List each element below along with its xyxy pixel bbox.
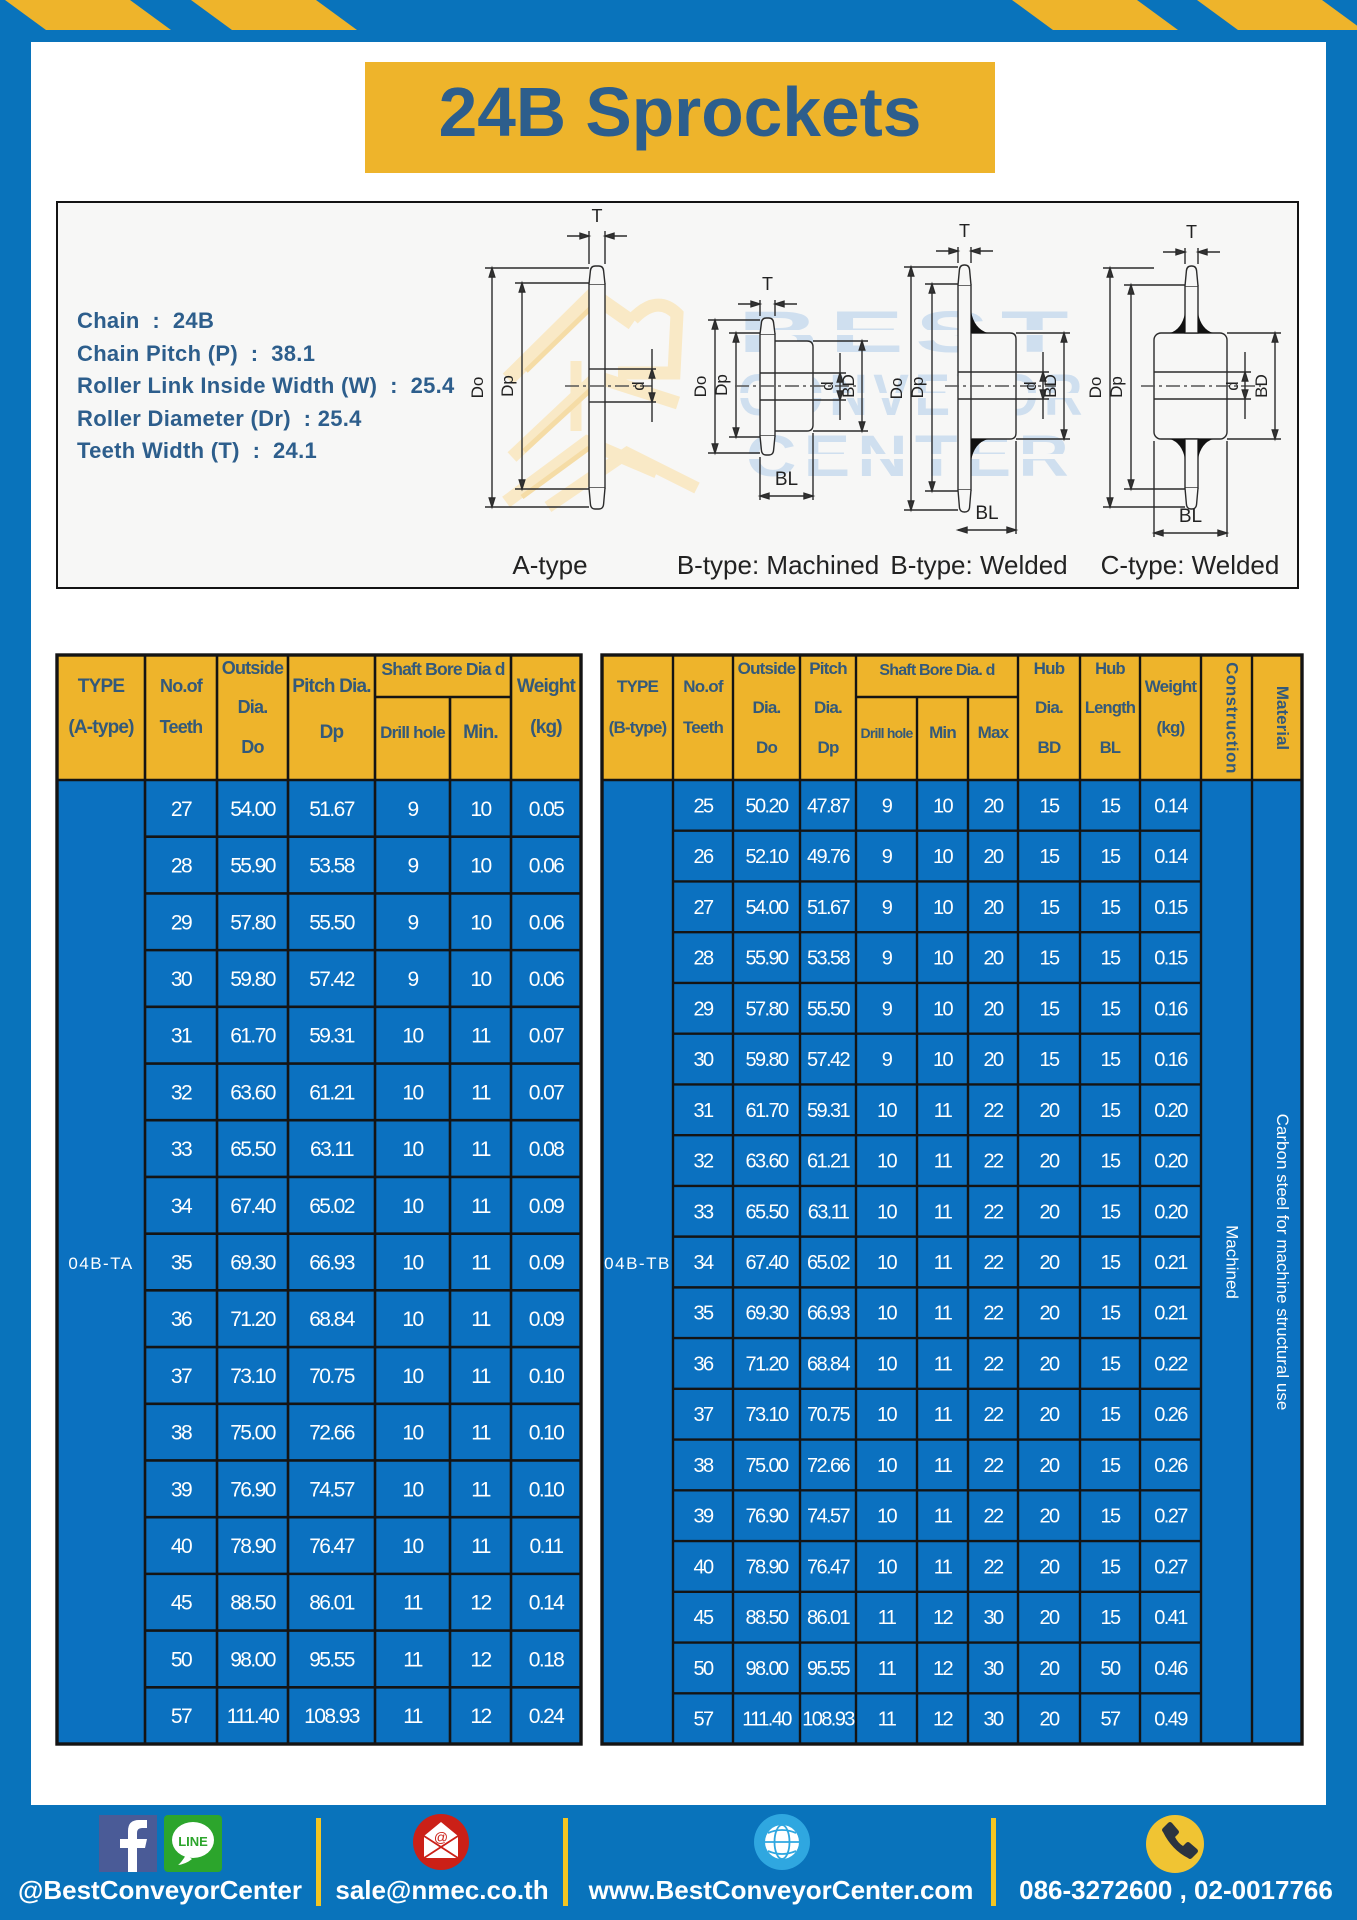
svg-text:LINE: LINE xyxy=(178,1834,208,1849)
svg-text:61.70: 61.70 xyxy=(745,1100,789,1122)
svg-text:9: 9 xyxy=(407,798,418,821)
svg-text:(kg): (kg) xyxy=(530,717,562,738)
svg-text:Pitch: Pitch xyxy=(809,659,847,678)
svg-text:57.80: 57.80 xyxy=(230,911,275,934)
svg-text:71.20: 71.20 xyxy=(230,1308,275,1331)
svg-text:20: 20 xyxy=(983,1049,1004,1071)
svg-text:0.27: 0.27 xyxy=(1154,1506,1188,1528)
svg-text:20: 20 xyxy=(1039,1201,1060,1223)
svg-text:12: 12 xyxy=(470,1648,491,1671)
svg-text:76.47: 76.47 xyxy=(807,1556,851,1578)
svg-text:22: 22 xyxy=(983,1201,1004,1223)
svg-text:57: 57 xyxy=(693,1709,714,1731)
svg-text:11: 11 xyxy=(471,1422,491,1445)
svg-text:108.93: 108.93 xyxy=(304,1705,360,1728)
svg-text:11: 11 xyxy=(403,1648,423,1671)
svg-text:10: 10 xyxy=(933,846,954,868)
svg-text:No.of: No.of xyxy=(160,676,204,696)
svg-text:BD: BD xyxy=(1038,738,1061,757)
svg-text:10: 10 xyxy=(933,897,954,919)
svg-text:0.26: 0.26 xyxy=(1154,1455,1188,1477)
svg-text:68.84: 68.84 xyxy=(309,1308,355,1331)
svg-text:73.10: 73.10 xyxy=(230,1365,275,1388)
svg-text:15: 15 xyxy=(1100,998,1121,1020)
svg-text:0.21: 0.21 xyxy=(1154,1252,1188,1274)
svg-text:04B-TA: 04B-TA xyxy=(68,1254,133,1273)
svg-text:Weight: Weight xyxy=(1145,677,1198,696)
svg-text:22: 22 xyxy=(983,1506,1004,1528)
svg-text:15: 15 xyxy=(1100,1252,1121,1274)
svg-text:86.01: 86.01 xyxy=(309,1592,354,1615)
svg-text:0.06: 0.06 xyxy=(529,911,564,934)
svg-text:50.20: 50.20 xyxy=(745,795,789,817)
svg-text:22: 22 xyxy=(983,1353,1004,1375)
svg-text:20: 20 xyxy=(1039,1556,1060,1578)
svg-text:0.10: 0.10 xyxy=(529,1365,564,1388)
svg-text:sale@nmec.co.th: sale@nmec.co.th xyxy=(335,1875,548,1905)
svg-text:47.87: 47.87 xyxy=(807,795,851,817)
svg-text:9: 9 xyxy=(882,897,893,919)
svg-text:34: 34 xyxy=(693,1252,714,1274)
svg-text:63.60: 63.60 xyxy=(745,1151,789,1173)
svg-text:15: 15 xyxy=(1100,1100,1121,1122)
svg-text:11: 11 xyxy=(934,1100,953,1122)
svg-text:34: 34 xyxy=(171,1195,193,1218)
svg-text:39: 39 xyxy=(693,1506,714,1528)
svg-text:20: 20 xyxy=(1039,1506,1060,1528)
svg-text:@: @ xyxy=(434,1829,448,1845)
svg-text:38: 38 xyxy=(693,1455,714,1477)
svg-text:40: 40 xyxy=(171,1535,192,1558)
svg-text:20: 20 xyxy=(983,998,1004,1020)
svg-text:Drill hole: Drill hole xyxy=(861,725,914,741)
svg-text:11: 11 xyxy=(403,1705,423,1728)
svg-text:0.11: 0.11 xyxy=(530,1535,564,1558)
svg-text:0.24: 0.24 xyxy=(529,1705,565,1728)
svg-text:Max: Max xyxy=(978,723,1010,742)
svg-text:73.10: 73.10 xyxy=(745,1404,789,1426)
svg-text:10: 10 xyxy=(402,1081,423,1104)
svg-text:10: 10 xyxy=(877,1404,898,1426)
svg-text:10: 10 xyxy=(877,1151,898,1173)
svg-text:29: 29 xyxy=(171,911,192,934)
svg-text:11: 11 xyxy=(471,1081,491,1104)
svg-text:20: 20 xyxy=(1039,1252,1060,1274)
svg-text:95.55: 95.55 xyxy=(807,1658,851,1680)
svg-text:26: 26 xyxy=(693,846,714,868)
svg-text:11: 11 xyxy=(934,1404,953,1426)
svg-text:0.15: 0.15 xyxy=(1154,948,1188,970)
svg-text:98.00: 98.00 xyxy=(745,1658,789,1680)
svg-text:11: 11 xyxy=(934,1252,953,1274)
svg-text:0.14: 0.14 xyxy=(1154,795,1188,817)
svg-text:Hub: Hub xyxy=(1095,660,1125,678)
svg-text:15: 15 xyxy=(1100,1049,1121,1071)
svg-text:36: 36 xyxy=(693,1353,714,1375)
svg-text:22: 22 xyxy=(983,1100,1004,1122)
svg-text:Construction: Construction xyxy=(1223,662,1242,774)
svg-text:Material: Material xyxy=(1273,686,1292,750)
svg-text:12: 12 xyxy=(933,1658,954,1680)
svg-text:10: 10 xyxy=(402,1195,423,1218)
svg-text:27: 27 xyxy=(693,897,714,919)
svg-text:15: 15 xyxy=(1100,1556,1121,1578)
svg-text:15: 15 xyxy=(1100,1607,1121,1629)
svg-text:74.57: 74.57 xyxy=(807,1506,851,1528)
svg-text:11: 11 xyxy=(878,1607,897,1629)
svg-text:Outside: Outside xyxy=(222,658,284,678)
svg-text:Dp: Dp xyxy=(320,722,344,743)
svg-text:15: 15 xyxy=(1039,846,1060,868)
svg-text:BL: BL xyxy=(1100,739,1121,757)
svg-text:78.90: 78.90 xyxy=(745,1556,789,1578)
svg-text:67.40: 67.40 xyxy=(745,1252,789,1274)
svg-text:11: 11 xyxy=(934,1455,953,1477)
svg-text:TYPE: TYPE xyxy=(78,676,125,697)
svg-text:0.10: 0.10 xyxy=(529,1422,564,1445)
svg-text:0.09: 0.09 xyxy=(529,1195,564,1218)
svg-text:88.50: 88.50 xyxy=(745,1607,789,1629)
svg-text:15: 15 xyxy=(1100,846,1121,868)
svg-text:69.30: 69.30 xyxy=(745,1303,789,1325)
svg-text:65.50: 65.50 xyxy=(230,1138,275,1161)
svg-text:20: 20 xyxy=(1039,1303,1060,1325)
svg-text:10: 10 xyxy=(402,1535,423,1558)
svg-text:76.90: 76.90 xyxy=(230,1478,275,1501)
svg-text:63.11: 63.11 xyxy=(808,1201,850,1223)
svg-text:0.20: 0.20 xyxy=(1154,1151,1188,1173)
svg-text:0.14: 0.14 xyxy=(529,1592,565,1615)
svg-text:57.42: 57.42 xyxy=(807,1049,851,1071)
svg-text:111.40: 111.40 xyxy=(227,1705,279,1728)
svg-text:59.80: 59.80 xyxy=(230,968,275,991)
svg-text:70.75: 70.75 xyxy=(309,1365,354,1388)
svg-text:Min: Min xyxy=(929,723,956,742)
svg-text:86.01: 86.01 xyxy=(807,1607,851,1629)
svg-text:11: 11 xyxy=(471,1365,491,1388)
svg-text:10: 10 xyxy=(933,795,954,817)
svg-text:111.40: 111.40 xyxy=(742,1709,792,1731)
svg-text:Hub: Hub xyxy=(1034,659,1065,678)
svg-text:30: 30 xyxy=(983,1607,1004,1629)
svg-text:22: 22 xyxy=(983,1151,1004,1173)
svg-text:98.00: 98.00 xyxy=(230,1648,275,1671)
svg-text:30: 30 xyxy=(693,1049,714,1071)
svg-text:30: 30 xyxy=(983,1658,1004,1680)
svg-text:0.07: 0.07 xyxy=(529,1081,564,1104)
svg-text:11: 11 xyxy=(878,1658,897,1680)
svg-text:Machined: Machined xyxy=(1223,1225,1242,1299)
svg-text:57.42: 57.42 xyxy=(309,968,354,991)
svg-text:72.66: 72.66 xyxy=(807,1455,851,1477)
svg-text:20: 20 xyxy=(1039,1151,1060,1173)
svg-text:9: 9 xyxy=(407,855,418,878)
svg-text:51.67: 51.67 xyxy=(309,798,354,821)
svg-text:10: 10 xyxy=(877,1100,898,1122)
svg-text:0.09: 0.09 xyxy=(529,1308,564,1331)
svg-text:10: 10 xyxy=(402,1308,423,1331)
svg-text:11: 11 xyxy=(471,1195,491,1218)
svg-text:78.90: 78.90 xyxy=(230,1535,275,1558)
svg-text:35: 35 xyxy=(693,1303,714,1325)
svg-text:20: 20 xyxy=(983,846,1004,868)
svg-text:9: 9 xyxy=(407,911,418,934)
svg-text:22: 22 xyxy=(983,1404,1004,1426)
svg-text:Shaft Bore Dia d: Shaft Bore Dia d xyxy=(381,659,504,679)
svg-text:28: 28 xyxy=(171,855,192,878)
svg-text:11: 11 xyxy=(403,1592,423,1615)
svg-text:20: 20 xyxy=(1039,1404,1060,1426)
svg-text:11: 11 xyxy=(471,1535,491,1558)
svg-text:15: 15 xyxy=(1100,1303,1121,1325)
svg-text:0.14: 0.14 xyxy=(1154,846,1188,868)
svg-text:35: 35 xyxy=(171,1252,192,1275)
svg-text:9: 9 xyxy=(882,1049,893,1071)
svg-text:15: 15 xyxy=(1039,795,1060,817)
svg-text:0.06: 0.06 xyxy=(529,968,564,991)
svg-text:Shaft Bore Dia. d: Shaft Bore Dia. d xyxy=(879,662,994,679)
svg-text:10: 10 xyxy=(402,1252,423,1275)
svg-text:11: 11 xyxy=(934,1353,953,1375)
svg-text:Do: Do xyxy=(241,737,264,757)
svg-text:76.90: 76.90 xyxy=(745,1506,789,1528)
svg-text:0.10: 0.10 xyxy=(529,1478,564,1501)
svg-text:20: 20 xyxy=(1039,1353,1060,1375)
svg-text:37: 37 xyxy=(693,1404,714,1426)
svg-text:95.55: 95.55 xyxy=(309,1648,354,1671)
svg-text:53.58: 53.58 xyxy=(309,855,354,878)
svg-text:61.21: 61.21 xyxy=(807,1151,851,1173)
svg-text:Teeth: Teeth xyxy=(160,717,203,737)
svg-text:(A-type): (A-type) xyxy=(68,717,134,738)
svg-text:30: 30 xyxy=(171,968,192,991)
svg-text:45: 45 xyxy=(171,1592,192,1615)
svg-text:10: 10 xyxy=(402,1422,423,1445)
svg-text:11: 11 xyxy=(471,1478,491,1501)
svg-text:15: 15 xyxy=(1039,1049,1060,1071)
svg-text:11: 11 xyxy=(934,1303,953,1325)
svg-text:29: 29 xyxy=(693,998,714,1020)
svg-text:0.41: 0.41 xyxy=(1154,1607,1188,1629)
svg-text:20: 20 xyxy=(1039,1455,1060,1477)
svg-text:0.07: 0.07 xyxy=(529,1025,564,1048)
svg-text:15: 15 xyxy=(1100,795,1121,817)
svg-text:10: 10 xyxy=(877,1556,898,1578)
svg-text:@BestConveyorCenter: @BestConveyorCenter xyxy=(18,1875,302,1905)
svg-text:69.30: 69.30 xyxy=(230,1252,275,1275)
svg-text:15: 15 xyxy=(1100,1506,1121,1528)
svg-text:54.00: 54.00 xyxy=(230,798,275,821)
svg-text:11: 11 xyxy=(934,1556,953,1578)
svg-text:74.57: 74.57 xyxy=(309,1478,354,1501)
svg-text:0.20: 0.20 xyxy=(1154,1201,1188,1223)
svg-text:32: 32 xyxy=(693,1151,714,1173)
svg-text:(kg): (kg) xyxy=(1157,718,1185,737)
svg-text:22: 22 xyxy=(983,1303,1004,1325)
svg-text:12: 12 xyxy=(933,1709,954,1731)
svg-text:55.90: 55.90 xyxy=(745,948,789,970)
svg-text:65.02: 65.02 xyxy=(309,1195,354,1218)
svg-text:31: 31 xyxy=(171,1025,192,1048)
svg-text:108.93: 108.93 xyxy=(802,1709,855,1731)
svg-text:Teeth: Teeth xyxy=(683,718,723,737)
svg-text:76.47: 76.47 xyxy=(309,1535,354,1558)
svg-text:Pitch Dia.: Pitch Dia. xyxy=(292,676,371,697)
svg-text:0.16: 0.16 xyxy=(1154,1049,1188,1071)
svg-text:20: 20 xyxy=(1039,1607,1060,1629)
svg-text:TYPE: TYPE xyxy=(617,677,659,696)
svg-text:10: 10 xyxy=(877,1303,898,1325)
svg-text:50: 50 xyxy=(1100,1658,1121,1680)
svg-text:Dia.: Dia. xyxy=(814,698,842,717)
svg-text:10: 10 xyxy=(877,1201,898,1223)
svg-text:10: 10 xyxy=(470,968,491,991)
svg-text:32: 32 xyxy=(171,1081,192,1104)
svg-text:15: 15 xyxy=(1100,1455,1121,1477)
svg-text:10: 10 xyxy=(877,1353,898,1375)
svg-text:10: 10 xyxy=(933,1049,954,1071)
svg-text:57: 57 xyxy=(1100,1709,1121,1731)
svg-text:11: 11 xyxy=(471,1138,491,1161)
svg-text:57.80: 57.80 xyxy=(745,998,789,1020)
svg-text:88.50: 88.50 xyxy=(230,1592,275,1615)
svg-text:9: 9 xyxy=(882,998,893,1020)
svg-text:Dp: Dp xyxy=(817,738,838,757)
svg-text:20: 20 xyxy=(1039,1709,1060,1731)
svg-text:65.50: 65.50 xyxy=(745,1201,789,1223)
svg-text:10: 10 xyxy=(402,1025,423,1048)
svg-text:61.70: 61.70 xyxy=(230,1025,275,1048)
svg-text:20: 20 xyxy=(983,948,1004,970)
svg-text:No.of: No.of xyxy=(683,677,724,696)
svg-text:15: 15 xyxy=(1100,1353,1121,1375)
svg-text:0.15: 0.15 xyxy=(1154,897,1188,919)
svg-text:15: 15 xyxy=(1100,1151,1121,1173)
svg-text:51.67: 51.67 xyxy=(807,897,851,919)
svg-text:0.09: 0.09 xyxy=(529,1252,564,1275)
svg-text:Dia.: Dia. xyxy=(238,697,268,717)
svg-text:12: 12 xyxy=(470,1705,491,1728)
svg-text:10: 10 xyxy=(933,998,954,1020)
svg-text:11: 11 xyxy=(471,1025,491,1048)
svg-text:33: 33 xyxy=(171,1138,192,1161)
svg-text:54.00: 54.00 xyxy=(745,897,789,919)
svg-text:15: 15 xyxy=(1100,897,1121,919)
svg-text:10: 10 xyxy=(470,911,491,934)
svg-text:0.46: 0.46 xyxy=(1154,1658,1188,1680)
svg-text:12: 12 xyxy=(933,1607,954,1629)
svg-text:Weight: Weight xyxy=(517,676,577,697)
svg-text:04B-TB: 04B-TB xyxy=(604,1254,671,1273)
svg-text:www.BestConveyorCenter.com: www.BestConveyorCenter.com xyxy=(588,1875,974,1905)
svg-text:63.60: 63.60 xyxy=(230,1081,275,1104)
svg-text:Carbon steel for machine struc: Carbon steel for machine structural use xyxy=(1273,1114,1292,1411)
svg-text:59.80: 59.80 xyxy=(745,1049,789,1071)
svg-text:086-3272600 , 02-0017766: 086-3272600 , 02-0017766 xyxy=(1019,1875,1333,1905)
svg-text:31: 31 xyxy=(693,1100,714,1122)
svg-text:66.93: 66.93 xyxy=(309,1252,354,1275)
svg-text:10: 10 xyxy=(470,798,491,821)
svg-text:0.49: 0.49 xyxy=(1154,1709,1188,1731)
svg-text:53.58: 53.58 xyxy=(807,948,851,970)
svg-text:75.00: 75.00 xyxy=(230,1422,275,1445)
svg-text:0.20: 0.20 xyxy=(1154,1100,1188,1122)
svg-text:10: 10 xyxy=(402,1478,423,1501)
svg-text:Do: Do xyxy=(756,738,777,757)
svg-text:10: 10 xyxy=(470,855,491,878)
svg-text:11: 11 xyxy=(471,1252,491,1275)
svg-text:0.22: 0.22 xyxy=(1154,1353,1188,1375)
svg-text:10: 10 xyxy=(877,1506,898,1528)
svg-text:11: 11 xyxy=(471,1308,491,1331)
svg-text:65.02: 65.02 xyxy=(807,1252,851,1274)
svg-text:Drill hole: Drill hole xyxy=(380,723,445,742)
svg-text:61.21: 61.21 xyxy=(309,1081,354,1104)
svg-text:50: 50 xyxy=(693,1658,714,1680)
svg-text:52.10: 52.10 xyxy=(745,846,789,868)
svg-text:Length: Length xyxy=(1085,699,1136,717)
svg-text:59.31: 59.31 xyxy=(309,1025,354,1048)
svg-text:30: 30 xyxy=(983,1709,1004,1731)
svg-text:22: 22 xyxy=(983,1556,1004,1578)
svg-text:Min.: Min. xyxy=(463,722,498,743)
svg-text:15: 15 xyxy=(1100,1201,1121,1223)
svg-text:11: 11 xyxy=(934,1201,953,1223)
svg-text:15: 15 xyxy=(1039,897,1060,919)
svg-text:11: 11 xyxy=(934,1506,953,1528)
svg-text:0.26: 0.26 xyxy=(1154,1404,1188,1426)
svg-text:49.76: 49.76 xyxy=(807,846,851,868)
svg-text:39: 39 xyxy=(171,1478,192,1501)
svg-text:10: 10 xyxy=(933,948,954,970)
svg-text:36: 36 xyxy=(171,1308,192,1331)
svg-text:59.31: 59.31 xyxy=(807,1100,851,1122)
svg-text:9: 9 xyxy=(882,846,893,868)
svg-text:9: 9 xyxy=(882,795,893,817)
svg-text:11: 11 xyxy=(878,1709,897,1731)
svg-text:0.18: 0.18 xyxy=(529,1648,564,1671)
svg-text:12: 12 xyxy=(470,1592,491,1615)
svg-text:15: 15 xyxy=(1100,1404,1121,1426)
svg-text:66.93: 66.93 xyxy=(807,1303,851,1325)
svg-text:57: 57 xyxy=(171,1705,192,1728)
svg-text:Outside: Outside xyxy=(738,659,796,678)
svg-text:75.00: 75.00 xyxy=(745,1455,789,1477)
svg-text:20: 20 xyxy=(983,897,1004,919)
svg-text:27: 27 xyxy=(171,798,192,821)
svg-text:0.08: 0.08 xyxy=(529,1138,564,1161)
svg-text:0.05: 0.05 xyxy=(529,798,564,821)
svg-text:15: 15 xyxy=(1039,948,1060,970)
svg-text:Dia.: Dia. xyxy=(753,698,781,717)
svg-text:10: 10 xyxy=(402,1138,423,1161)
svg-text:71.20: 71.20 xyxy=(745,1353,789,1375)
svg-text:68.84: 68.84 xyxy=(807,1353,851,1375)
svg-text:37: 37 xyxy=(171,1365,192,1388)
svg-text:10: 10 xyxy=(402,1365,423,1388)
svg-text:11: 11 xyxy=(934,1151,953,1173)
svg-text:33: 33 xyxy=(693,1201,714,1223)
svg-text:22: 22 xyxy=(983,1455,1004,1477)
svg-text:0.27: 0.27 xyxy=(1154,1556,1188,1578)
svg-text:28: 28 xyxy=(693,948,714,970)
svg-text:70.75: 70.75 xyxy=(807,1404,851,1426)
svg-text:10: 10 xyxy=(877,1455,898,1477)
svg-text:9: 9 xyxy=(882,948,893,970)
svg-text:63.11: 63.11 xyxy=(310,1138,354,1161)
svg-text:72.66: 72.66 xyxy=(309,1422,354,1445)
svg-text:40: 40 xyxy=(693,1556,714,1578)
